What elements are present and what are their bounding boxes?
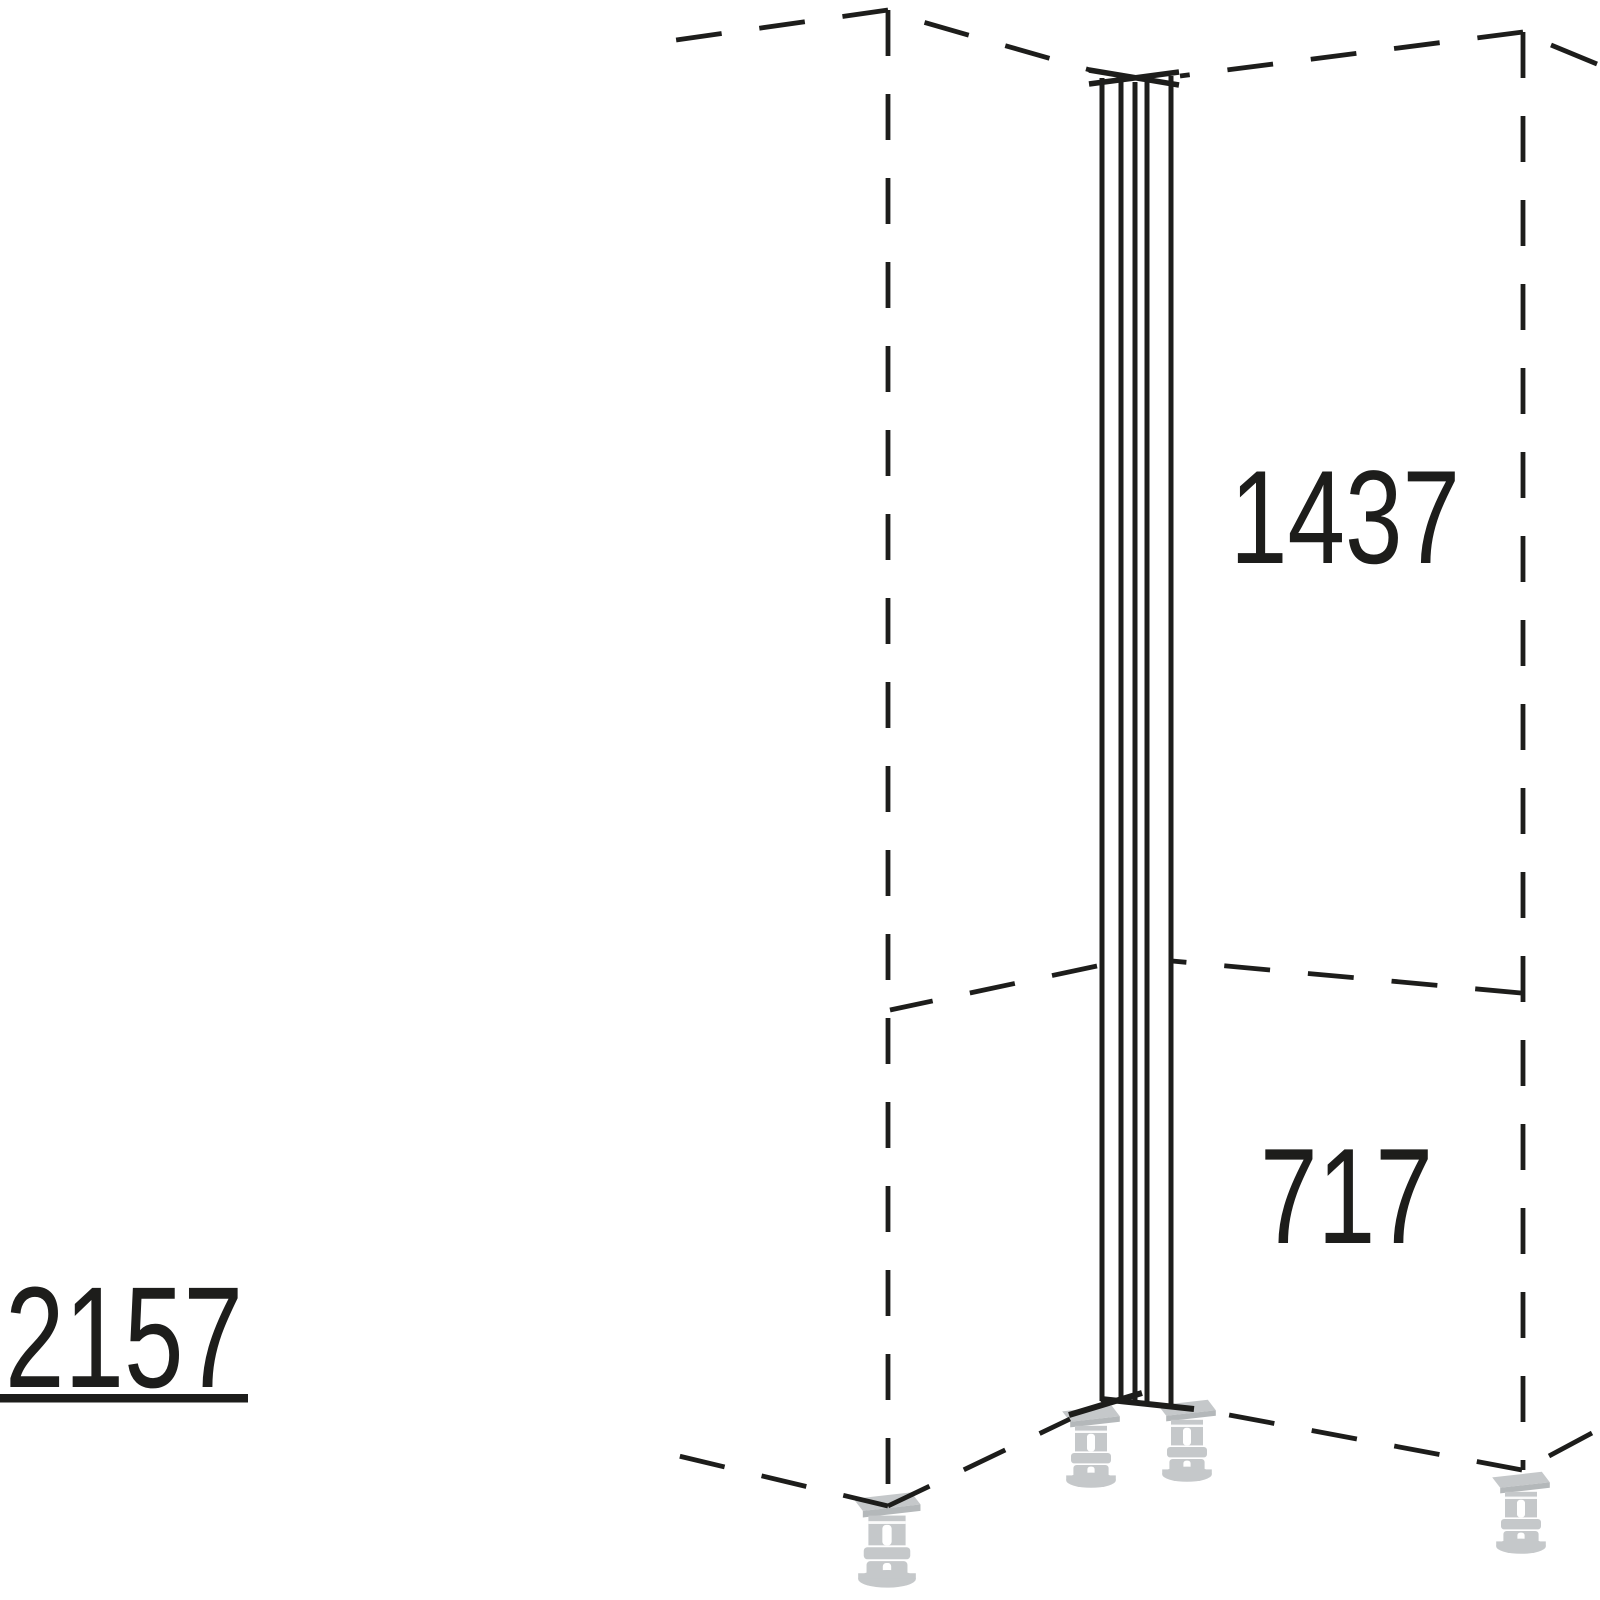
upper-section-height-label: 1437 [1230, 444, 1460, 592]
left-cabinet-bottom-right-edge [888, 1419, 1070, 1506]
right-cabinet-receding-stubs [1549, 45, 1597, 1456]
left-cabinet-bottom-left-edge [662, 1452, 888, 1506]
left-cabinet-dashed-outline [662, 10, 1097, 1506]
left-cabinet-divider-line [890, 966, 1097, 1010]
total-height-underline [0, 1394, 248, 1403]
adjustable-feet-group [854, 1400, 1550, 1588]
left-cabinet-top-left-edge [662, 10, 888, 42]
adjustable-foot-icon [1492, 1472, 1550, 1554]
left-cabinet-top-right-edge [888, 12, 1090, 70]
top-receding-stub [1551, 45, 1597, 64]
adjustable-foot-icon [1062, 1406, 1120, 1488]
corner-filler-post [1069, 70, 1194, 1415]
bottom-receding-stub [1549, 1433, 1592, 1456]
right-cabinet-bottom-edge [1192, 1408, 1522, 1470]
lower-section-height-label: 717 [1260, 1120, 1433, 1272]
corner-post-diagram: 1437 717 2157 [0, 0, 1600, 1600]
right-cabinet-top-edge [1180, 32, 1523, 76]
adjustable-foot-icon [1158, 1400, 1216, 1482]
total-height-label: 2157 [5, 1257, 243, 1418]
technical-drawing-canvas: 1437 717 2157 [0, 0, 1600, 1600]
right-cabinet-divider-line [1172, 961, 1521, 993]
